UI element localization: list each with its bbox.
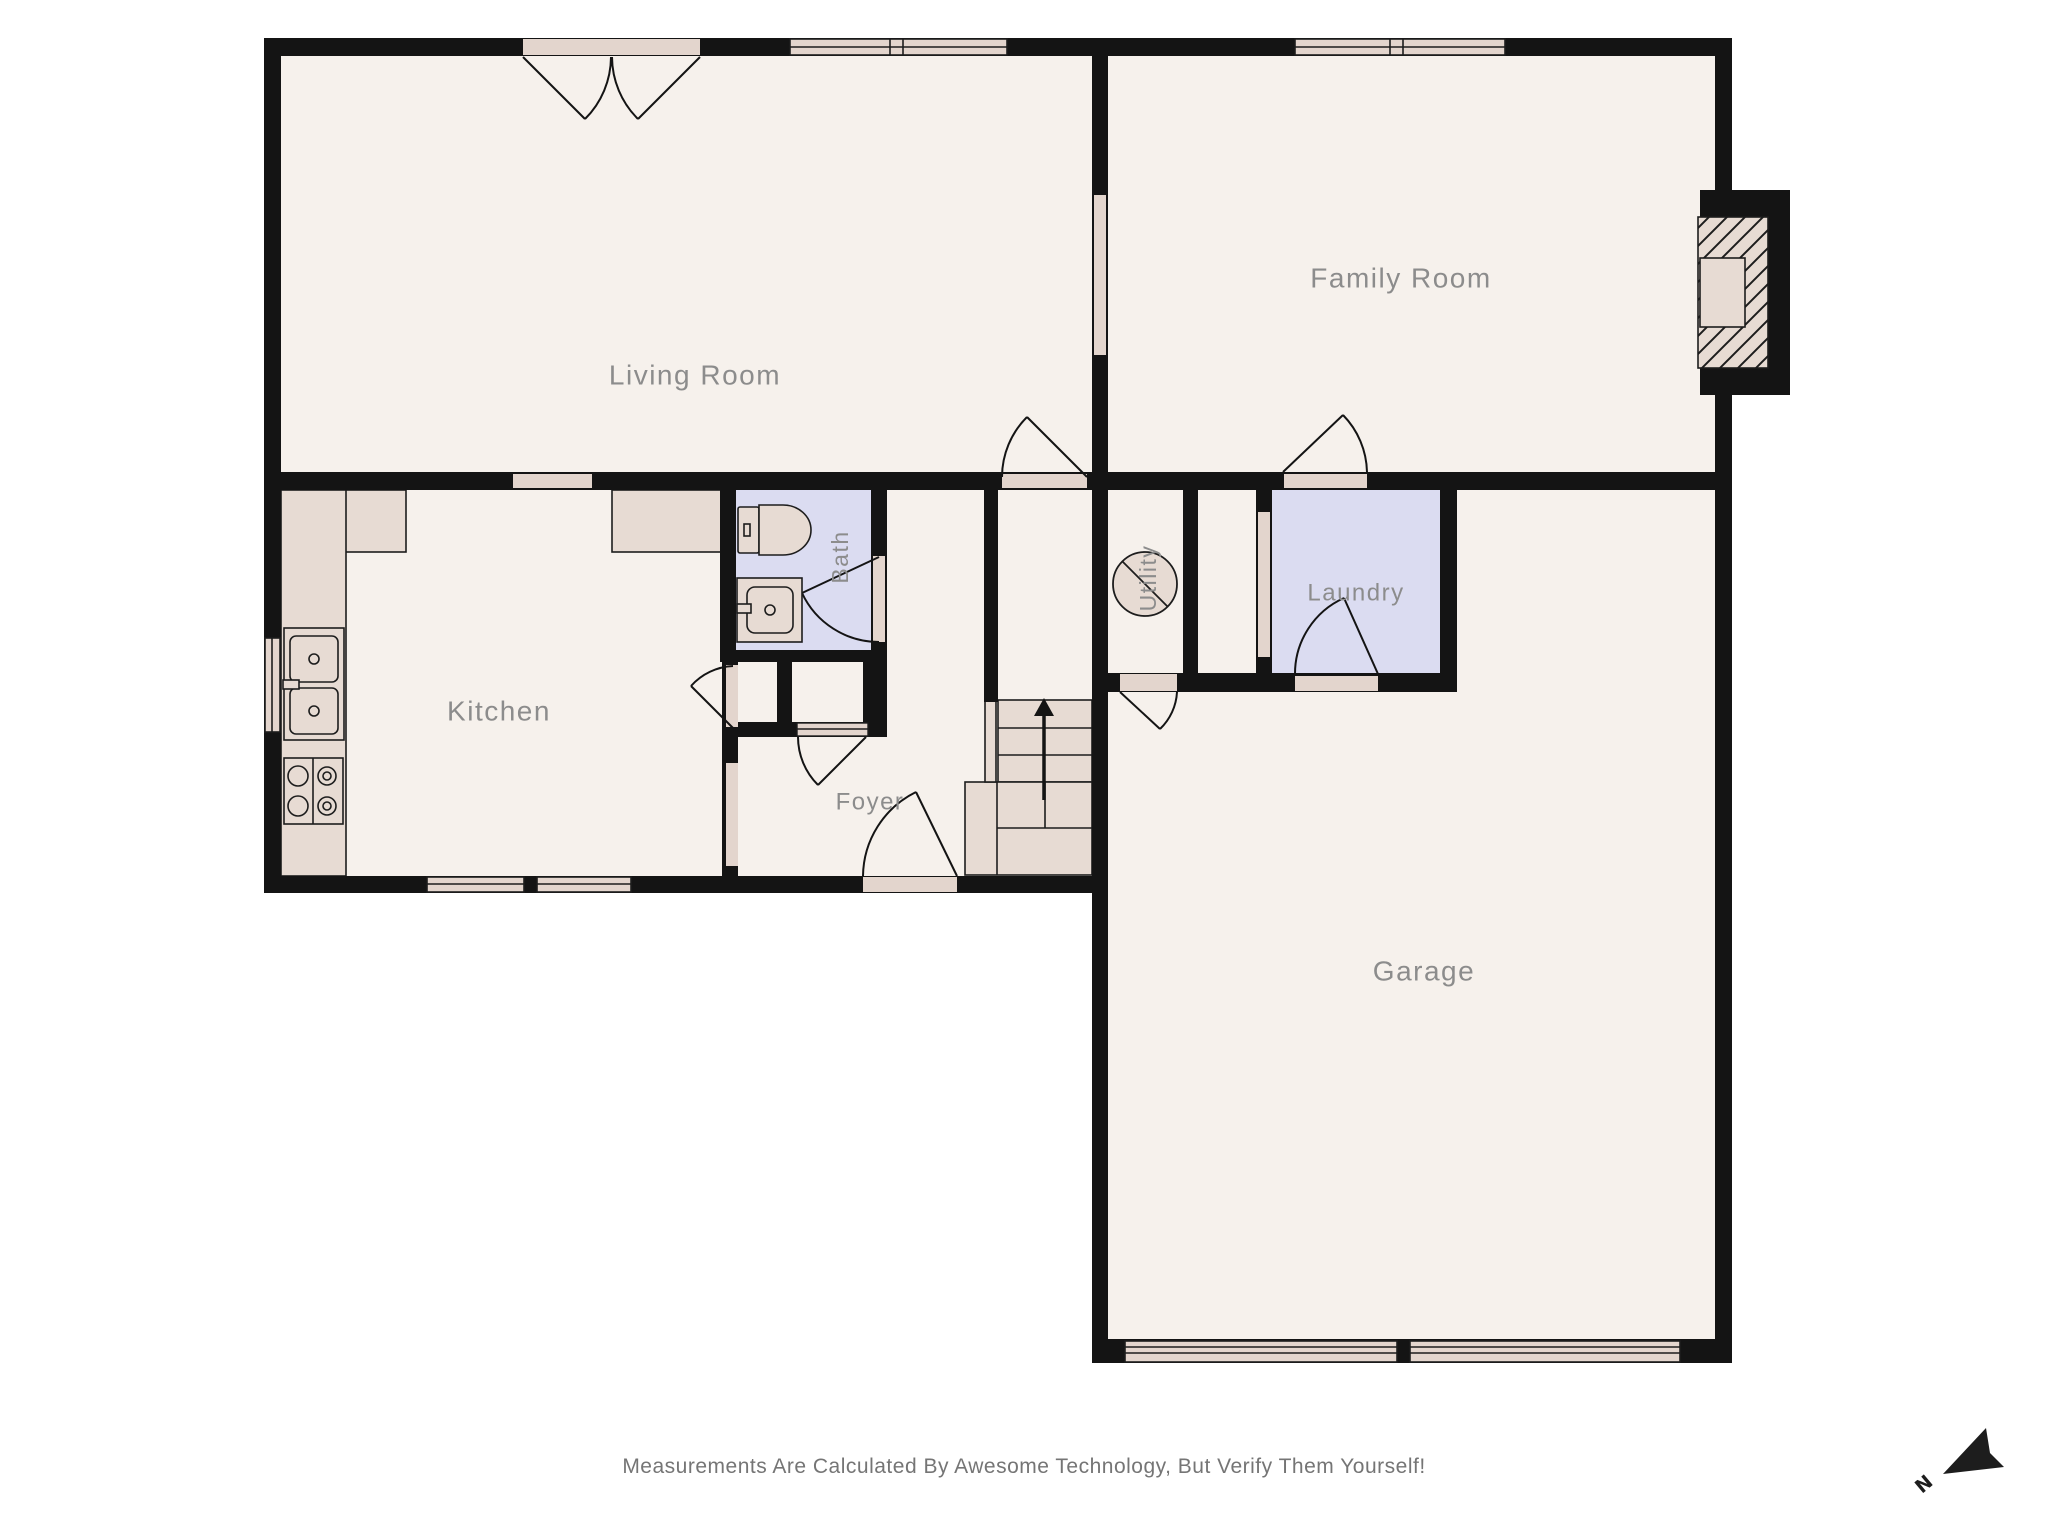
garage-label: Garage (1373, 955, 1475, 986)
utility-garage-door-opening (1120, 674, 1177, 691)
bath-vanity (737, 578, 802, 642)
floor-plan-page: Living Room Family Room Kitchen Garage F… (0, 0, 2048, 1536)
kitchen-passage (513, 474, 592, 488)
floor-plan-canvas: Living Room Family Room Kitchen Garage F… (0, 0, 2048, 1536)
kitchen-label: Kitchen (447, 695, 551, 726)
laundry-side-door-leaf (1258, 512, 1270, 657)
fireplace (1698, 217, 1768, 368)
family-room-window (1295, 39, 1505, 55)
floor-garage-upper (1457, 490, 1715, 692)
disclaimer-text: Measurements Are Calculated By Awesome T… (622, 1455, 1425, 1478)
kitchen-sink (283, 628, 344, 740)
living-family-passage (1094, 195, 1106, 355)
foyer-label: Foyer (836, 788, 905, 815)
floor-garage (1108, 692, 1715, 1339)
front-door-opening (863, 877, 957, 892)
north-arrow-icon: N (1911, 1428, 2004, 1498)
utility-label: Utility (1135, 545, 1161, 612)
bath-door-opening (873, 556, 885, 642)
closet-sliding-door (797, 723, 868, 736)
entry-french-door-opening (523, 39, 700, 55)
pantry-door-opening (726, 665, 738, 727)
bath-label: Bath (827, 530, 853, 583)
north-label: N (1911, 1471, 1937, 1498)
laundry-garage-door-opening (1295, 676, 1378, 691)
living-door-opening (1002, 474, 1087, 488)
laundry-label: Laundry (1307, 579, 1404, 606)
living-room-label: Living Room (609, 359, 781, 390)
family-room-label: Family Room (1310, 262, 1491, 293)
kitchen-side-window (265, 638, 280, 732)
stair-railing (985, 700, 996, 782)
kitchen-foyer-passage (726, 763, 738, 866)
floor-living-family (281, 56, 1715, 472)
toilet-fixture (738, 505, 811, 555)
family-laundry-door-opening (1284, 474, 1367, 488)
stove (284, 758, 343, 824)
living-room-window (790, 39, 1007, 55)
counter-right (612, 490, 722, 552)
